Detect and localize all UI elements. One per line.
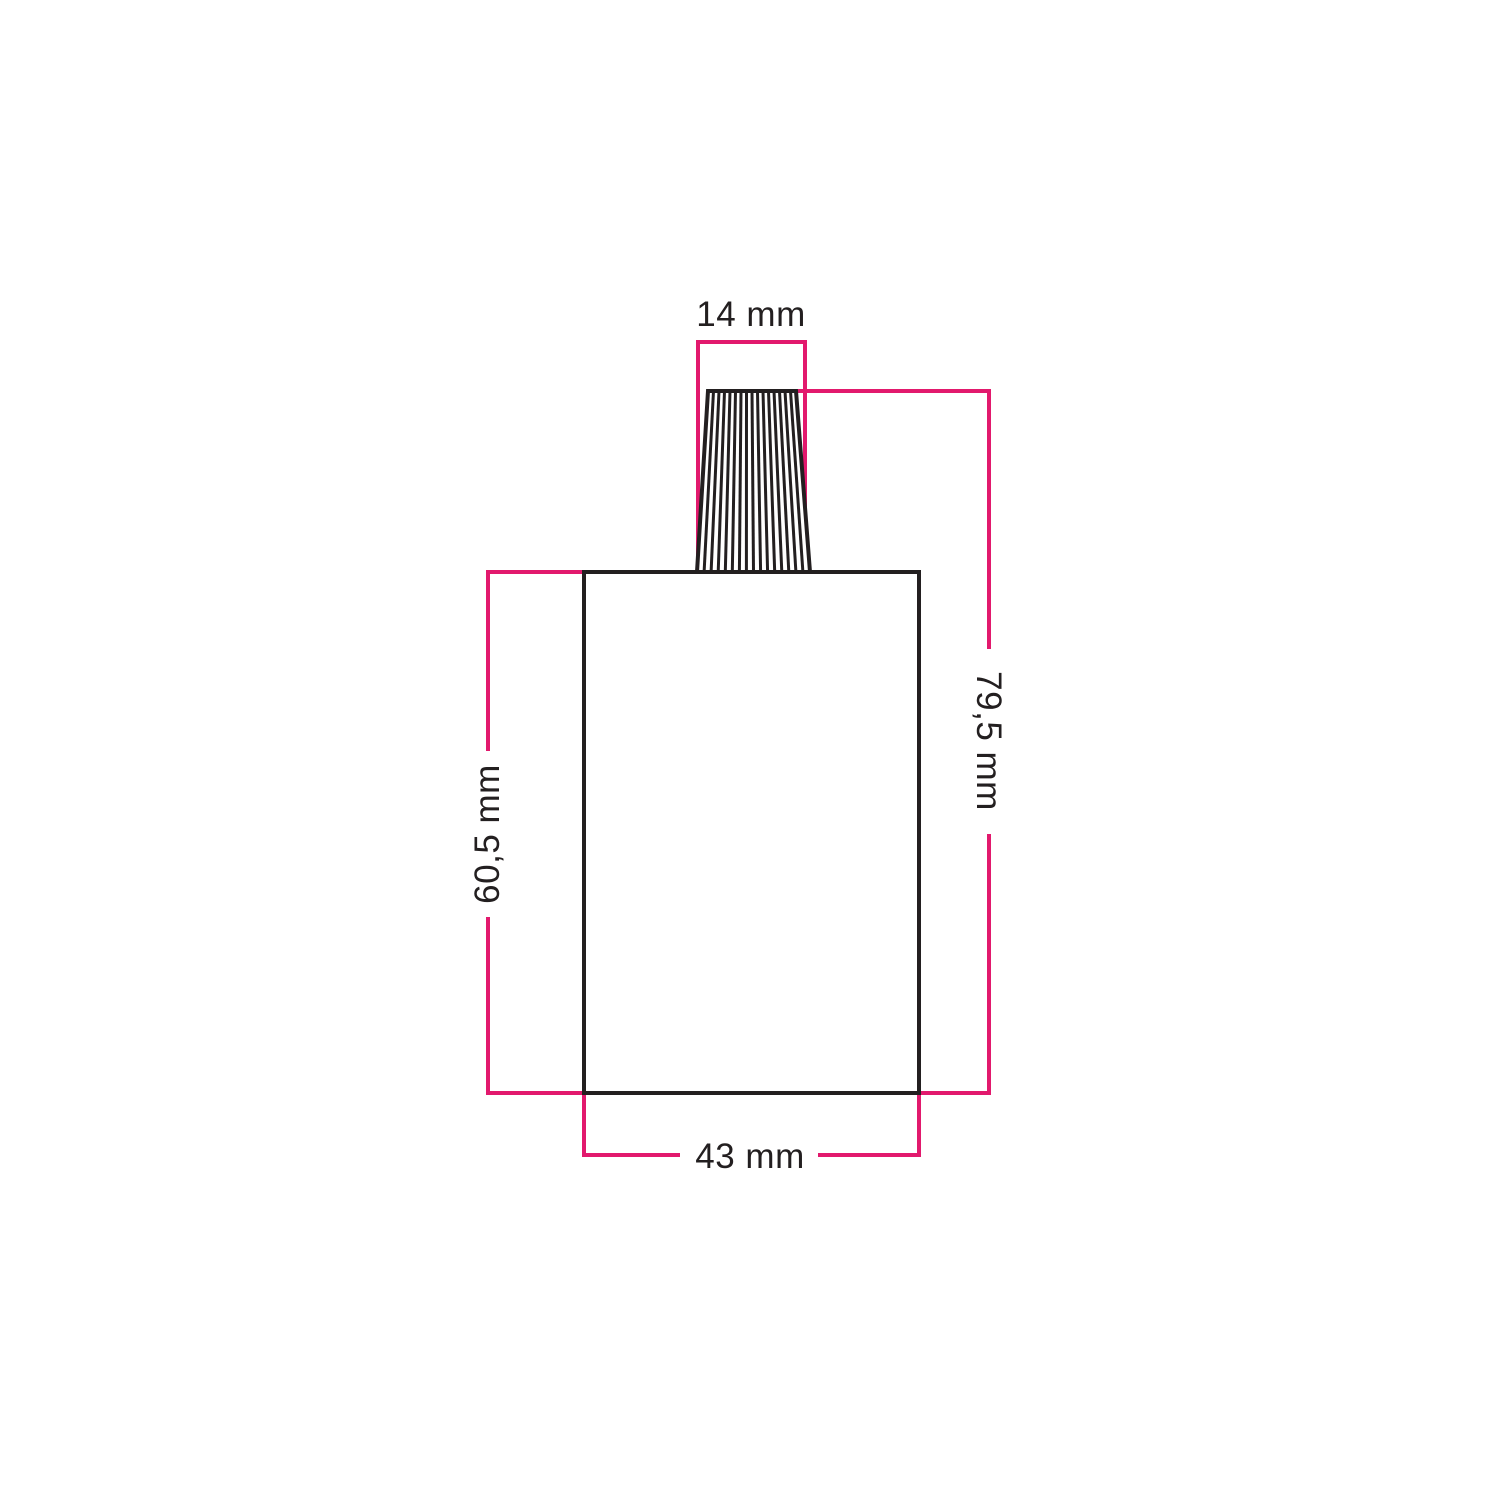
dim-bracket-total-height-lower <box>919 834 989 1093</box>
cable-grip-rib-line <box>752 391 754 572</box>
label-top-width: 14 mm <box>696 295 805 334</box>
label-total-height: 79,5 mm <box>969 671 1008 811</box>
holder-body <box>584 572 919 1093</box>
diagram-svg: 14 mm 79,5 mm 60,5 mm 43 mm <box>0 0 1500 1500</box>
label-body-width: 43 mm <box>695 1137 804 1176</box>
dim-bracket-body-width-right <box>818 1093 919 1155</box>
label-body-height: 60,5 mm <box>468 764 507 904</box>
dimension-diagram: 14 mm 79,5 mm 60,5 mm 43 mm <box>0 0 1500 1500</box>
dim-bracket-body-width-left <box>584 1093 680 1155</box>
dim-bracket-body-height-upper <box>488 572 584 751</box>
cable-grip-rib-line <box>739 391 741 572</box>
dim-bracket-body-height-lower <box>488 917 584 1093</box>
product-outline <box>584 391 919 1093</box>
cable-grip-cone <box>697 391 810 572</box>
